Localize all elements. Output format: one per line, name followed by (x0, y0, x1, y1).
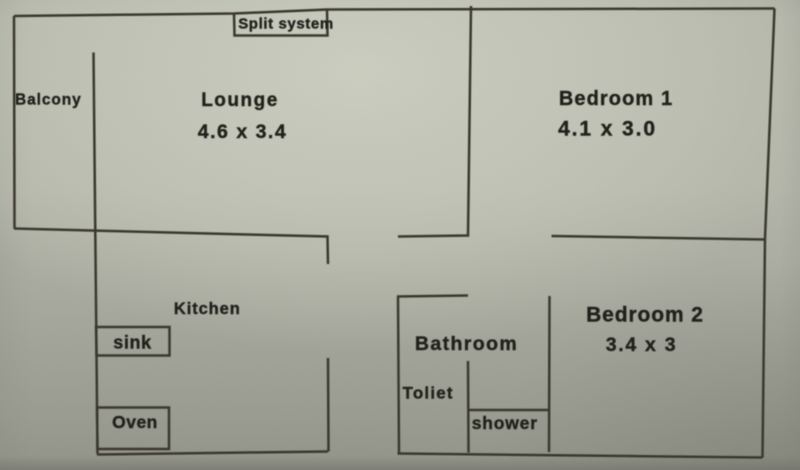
svg-text:Oven: Oven (112, 412, 158, 432)
svg-text:Split system: Split system (238, 16, 334, 33)
svg-text:4.6 x 3.4: 4.6 x 3.4 (198, 121, 287, 143)
svg-text:Bedroom 2: Bedroom 2 (586, 304, 704, 327)
svg-text:4.1 x 3.0: 4.1 x 3.0 (558, 118, 657, 141)
svg-text:Toliet: Toliet (403, 384, 454, 403)
svg-text:shower: shower (472, 413, 538, 433)
svg-text:Kitchen: Kitchen (174, 300, 241, 318)
svg-text:Lounge: Lounge (201, 90, 279, 111)
svg-text:3.4 x 3: 3.4 x 3 (606, 334, 678, 356)
svg-text:Balcony: Balcony (15, 92, 82, 109)
svg-text:sink: sink (113, 333, 152, 353)
svg-text:Bedroom 1: Bedroom 1 (559, 88, 673, 110)
svg-text:Bathroom: Bathroom (415, 333, 518, 355)
